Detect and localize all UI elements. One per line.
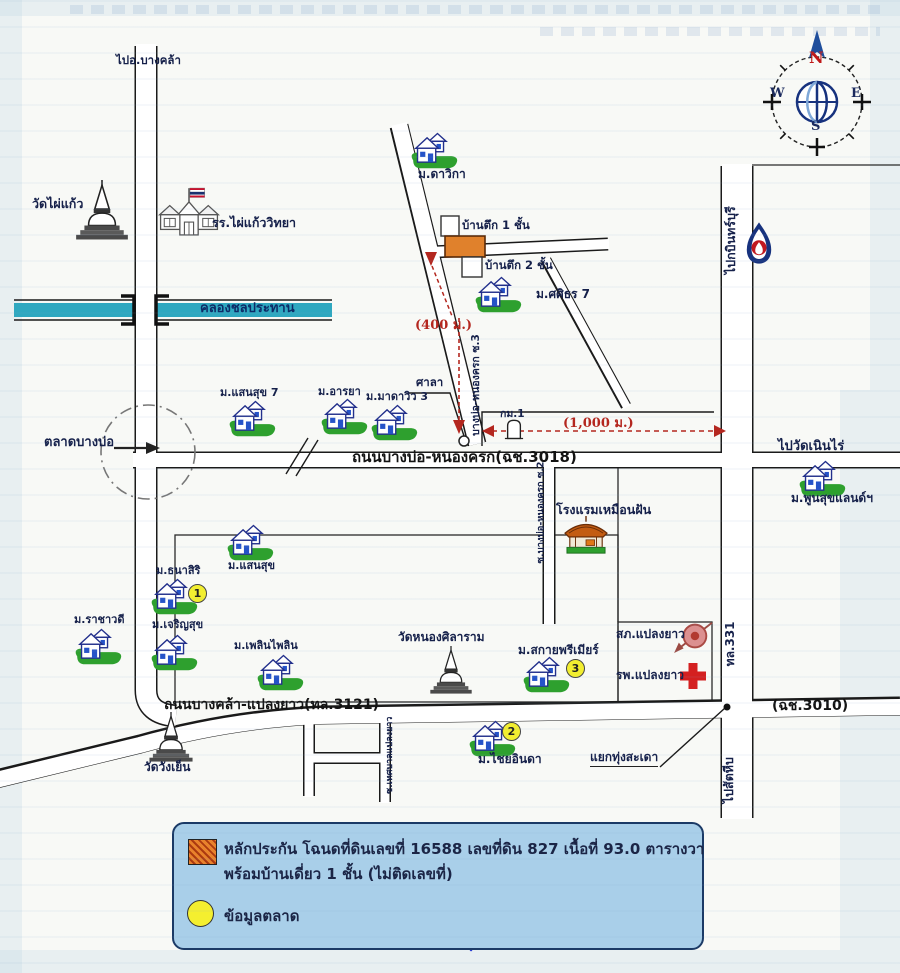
road-label-soi2: ซ.บางบ่อ-หนองครก ซ.2 [537, 452, 548, 572]
two-storey-building [462, 257, 482, 277]
scanned-map-page: ไปอ.บางคล้า วัดไผ่แก้ว รร.ไผ่แก้ววิทยา ค… [0, 0, 900, 973]
compass-north-label: N [809, 48, 824, 67]
market-data-badge-2: 2 [502, 722, 521, 741]
market-data-swatch [187, 900, 214, 927]
junction-label-thung-sadao: แยกทุ่งสะเดา [590, 751, 658, 767]
distance-label-400m: (400 ม.) [415, 319, 472, 334]
village-label-chaiya-inda: ม.ไชยอินดา [478, 753, 542, 767]
highway-331-label: ทล.331 [724, 614, 738, 674]
road-label-to-wat-noen-rai: ไปวัดเนินไร่ [778, 440, 844, 455]
village-label-sky-premier: ม.สกายพรีเมียร์ [518, 644, 599, 658]
village-label-davika: ม.ดาวิกา [418, 168, 466, 182]
village-label-rachawadee: ม.ราชาวดี [74, 614, 124, 627]
bottom-road-label: ถนนบางคล้า-แปลงยาว(ทล.3121) [164, 697, 379, 713]
house-icon-sky-premier [524, 658, 570, 693]
road-label-soi3: บางบ่อ-หนองครก ซ.3 [470, 325, 482, 445]
hotel-icon [565, 516, 607, 553]
km1-label: กม.1 [500, 408, 525, 420]
house-icon-davika [412, 134, 458, 169]
legend-box: หลักประกัน โฉนดที่ดินเลขที่ 16588 เลขที่… [172, 822, 704, 950]
soi-municipal-label: ซ.เทศบาลแปลงยาว [385, 695, 395, 815]
village-label-poonsuk-land: ม.พูนสุขแลนด์ฯ [791, 492, 873, 506]
compass-west-label: W [770, 86, 785, 101]
legend-market-label: ข้อมูลตลาด [224, 904, 299, 928]
temple-icon-wat-phai-kaew [76, 180, 128, 239]
one-storey-building [441, 216, 459, 236]
temple-label-wat-phai-kaew: วัดไผ่แก้ว [32, 197, 83, 211]
school-icon [160, 188, 219, 235]
house-icon-sansuk7 [230, 402, 276, 437]
legend-collateral-line2: พร้อมบ้านเดี่ยว 1 ชั้น (ไม่ติดเลขที่) [224, 862, 453, 886]
house-icon-ploenpailin [258, 656, 304, 691]
junction-dot [724, 704, 731, 711]
police-label: สภ.แปลงยาว [616, 628, 685, 642]
sala-label: ศาลา [416, 376, 443, 389]
house-icon-madaview [372, 406, 418, 441]
market-data-badge-1: 1 [188, 584, 207, 603]
house-icon-sansuk [228, 526, 274, 561]
hospital-label: รพ.แปลงยาว [616, 669, 684, 683]
road-label-to-bangkhla: ไปอ.บางคล้า [116, 54, 181, 67]
village-label-thanasiri: ม.ธนาสิริ [156, 565, 200, 578]
village-label-sasithorn: ม.ศศิธร 7 [536, 288, 590, 302]
village-label-sansuk7: ม.แสนสุข 7 [220, 387, 278, 400]
village-label-ploenpailin: ม.เพลินไพลิน [234, 640, 298, 653]
house-icon-araya [322, 400, 368, 435]
building-label-2-storey: บ้านตึก 2 ชั้น [485, 259, 553, 272]
temple-label-wat-wang-yen: วัดวังเย็น [144, 761, 190, 775]
temple-icon-wat-nong-silaram [430, 646, 471, 694]
house-icon-charoensuk [152, 636, 198, 671]
legend-collateral-line1: หลักประกัน โฉนดที่ดินเลขที่ 16588 เลขที่… [224, 837, 704, 861]
route-3010-label: (ฉช.3010) [772, 698, 848, 714]
market-label: ตลาดบางบ่อ [44, 436, 114, 451]
collateral-swatch [188, 839, 217, 865]
km-milestone-icon [505, 420, 523, 438]
market-data-badge-3: 3 [566, 659, 585, 678]
hotel-label: โรงแรมเหมือนฝัน [556, 503, 651, 517]
road-label-to-kabinburi: ไปกบินทร์บุรี [724, 180, 738, 300]
village-label-sansuk: ม.แสนสุข [228, 560, 275, 573]
collateral-building [445, 236, 485, 257]
house-icon-rachawadee [76, 630, 122, 665]
house-icon-sasithorn [476, 278, 522, 313]
village-label-charoensuk: ม.เจริญสุข [152, 619, 203, 632]
compass-south-label: S [811, 119, 820, 134]
school-label: รร.ไผ่แก้ววิทยา [212, 216, 296, 230]
sala-marker [459, 436, 469, 446]
temple-label-wat-nong-silaram: วัดหนองศิลาราม [398, 631, 485, 645]
village-label-madaview: ม.มาดาวิว 3 [366, 391, 428, 404]
compass-east-label: E [851, 86, 861, 101]
village-label-araya: ม.อารยา [318, 386, 361, 399]
canal-label: คลองชลประทาน [200, 302, 295, 317]
building-label-1-storey: บ้านตึก 1 ชั้น [462, 219, 530, 232]
distance-label-1000m: (1,000 ม.) [563, 417, 634, 432]
road-label-to-sattahip: ไปสัตหีบ [722, 740, 736, 820]
